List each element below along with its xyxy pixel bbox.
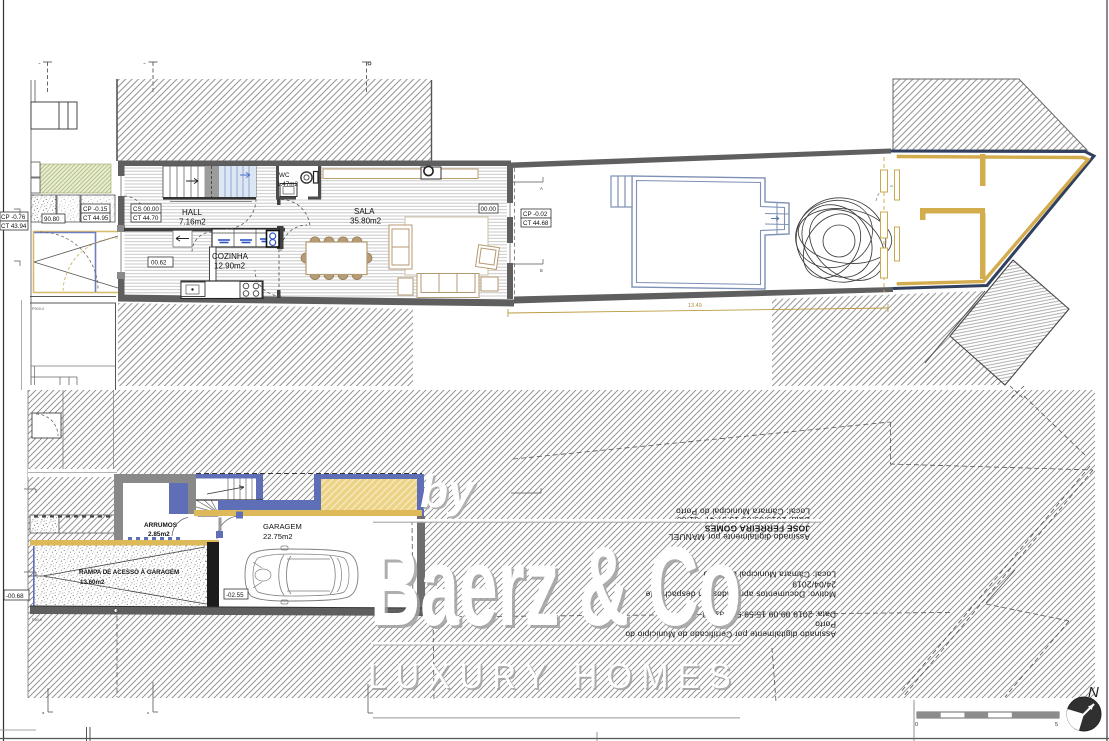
- svg-text:5: 5: [1055, 722, 1058, 728]
- svg-text:CS 00.00: CS 00.00: [133, 206, 159, 213]
- svg-text:0: 0: [915, 722, 918, 728]
- svg-text:2.85m2: 2.85m2: [148, 531, 170, 538]
- svg-text:P500-0: P500-0: [32, 307, 44, 311]
- svg-text:7.16m2: 7.16m2: [179, 218, 206, 227]
- svg-text:~: ~: [38, 61, 41, 66]
- svg-text:B: B: [540, 268, 543, 273]
- svg-text:13.60m2: 13.60m2: [80, 579, 105, 586]
- svg-text:24/04/2019: 24/04/2019: [792, 580, 836, 590]
- svg-text:SALA: SALA: [354, 207, 375, 216]
- svg-text:CT 44.68: CT 44.68: [523, 220, 549, 227]
- svg-text:by: by: [420, 465, 476, 517]
- svg-text:WC: WC: [279, 172, 290, 179]
- svg-text:Baerz & Co: Baerz & Co: [370, 524, 741, 649]
- svg-text:RAMPA DE ACESSO À GARAGEM: RAMPA DE ACESSO À GARAGEM: [79, 569, 179, 576]
- svg-text:A: A: [540, 186, 543, 191]
- svg-text:Porto: Porto: [815, 620, 836, 630]
- svg-text:LUXURY HOMES: LUXURY HOMES: [368, 657, 740, 696]
- svg-text:CT 44.95: CT 44.95: [83, 215, 109, 222]
- svg-text:35.80m2: 35.80m2: [350, 217, 382, 226]
- svg-text:00.00: 00.00: [481, 206, 497, 213]
- svg-text:CT 43.94: CT 43.94: [1, 223, 27, 230]
- svg-text:CP -0.02: CP -0.02: [523, 211, 548, 218]
- svg-text:P50-9: P50-9: [32, 618, 42, 622]
- svg-text:CP -0.76: CP -0.76: [1, 214, 26, 221]
- svg-text:-02.55: -02.55: [226, 592, 244, 599]
- svg-text:22.75m2: 22.75m2: [263, 532, 293, 541]
- svg-text:12.90m2: 12.90m2: [214, 262, 246, 271]
- svg-text:CP -0.15: CP -0.15: [83, 206, 108, 213]
- svg-text:-00.68: -00.68: [6, 593, 24, 600]
- svg-text:N: N: [1088, 684, 1099, 701]
- svg-text:CT 44.70: CT 44.70: [133, 215, 159, 222]
- svg-text:HALL: HALL: [182, 208, 203, 217]
- svg-text:13.49: 13.49: [688, 303, 702, 309]
- svg-text:ARRUMOS: ARRUMOS: [144, 522, 178, 529]
- svg-text:~: ~: [143, 61, 146, 66]
- svg-text:00.62: 00.62: [151, 260, 167, 267]
- svg-text:Local: Câmara Municipal do Por: Local: Câmara Municipal do Porto: [676, 507, 810, 517]
- svg-text:1.47m2: 1.47m2: [277, 181, 299, 188]
- svg-text:COZINHA: COZINHA: [212, 252, 249, 261]
- svg-text:90.80: 90.80: [44, 216, 60, 223]
- svg-text:GARAGEM: GARAGEM: [263, 522, 302, 531]
